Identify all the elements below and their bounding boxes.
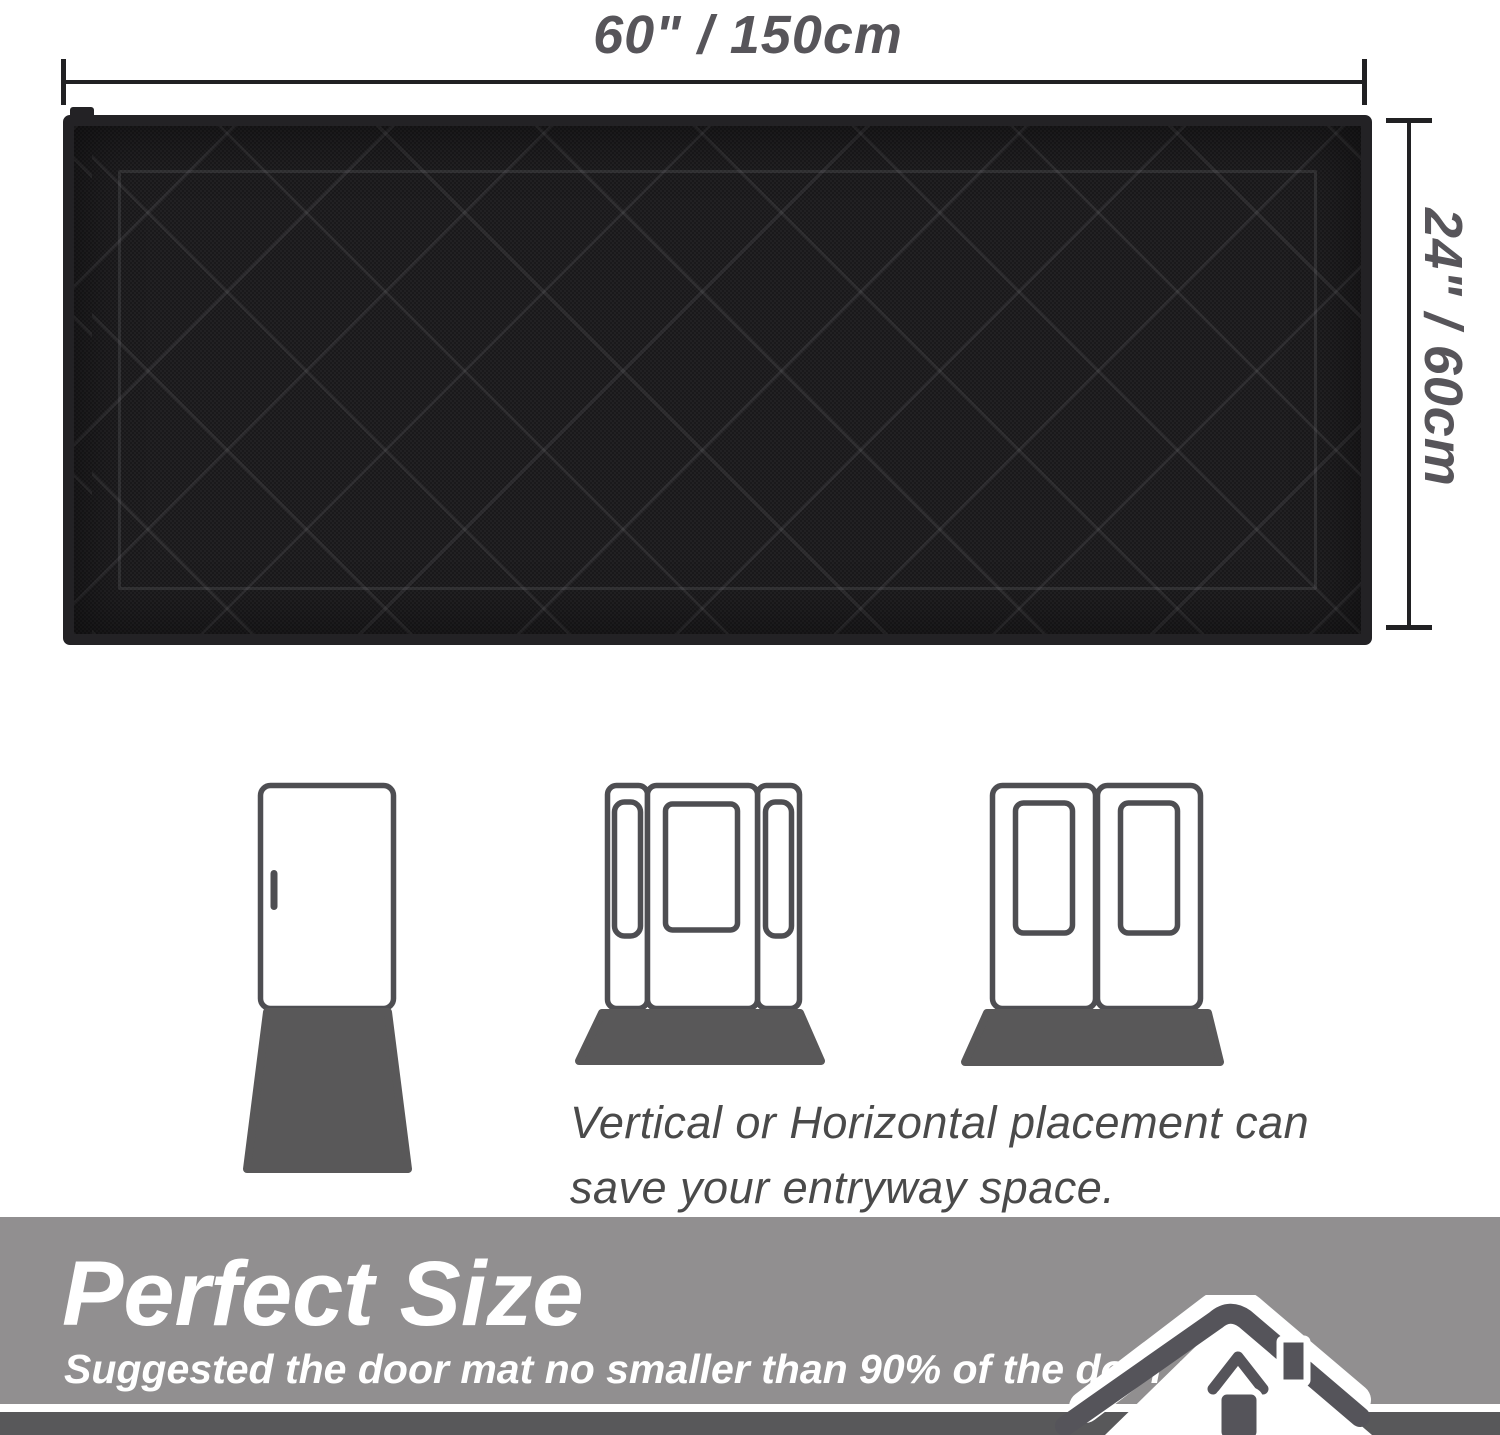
width-dimension-tick-left bbox=[61, 59, 66, 105]
chimney-icon bbox=[1280, 1339, 1307, 1383]
placement-caption: Vertical or Horizontal placement can sav… bbox=[570, 1090, 1309, 1221]
door-mat-image bbox=[63, 115, 1372, 645]
mat-binding-corner bbox=[70, 107, 94, 119]
width-dimension-tick-right bbox=[1362, 59, 1367, 105]
height-dimension-tick-bottom bbox=[1386, 625, 1432, 630]
placement-caption-line1: Vertical or Horizontal placement can bbox=[570, 1090, 1309, 1155]
horizontal-mat-shape bbox=[965, 1013, 1220, 1062]
height-dimension-tick-top bbox=[1386, 118, 1432, 123]
house-door-icon bbox=[1218, 1391, 1260, 1435]
mat-inner-border-pattern bbox=[118, 170, 1317, 590]
width-dimension-line bbox=[63, 80, 1365, 84]
banner-title: Perfect Size bbox=[62, 1242, 584, 1347]
door-with-sidelights-icon bbox=[570, 782, 830, 1067]
vertical-mat-shape bbox=[247, 1012, 408, 1169]
house-roof-icon bbox=[900, 1295, 1500, 1435]
double-door-icon bbox=[955, 782, 1235, 1067]
height-dimension-label: 24" / 60cm bbox=[1410, 208, 1476, 528]
door-handle-icon bbox=[271, 870, 278, 910]
single-door-icon bbox=[235, 782, 415, 1177]
product-size-diagram: 60" / 150cm 24" / 60cm Ver bbox=[0, 0, 1500, 1435]
width-dimension-label: 60" / 150cm bbox=[448, 4, 1048, 66]
horizontal-mat-shape bbox=[579, 1013, 821, 1061]
placement-caption-line2: save your entryway space. bbox=[570, 1155, 1309, 1220]
